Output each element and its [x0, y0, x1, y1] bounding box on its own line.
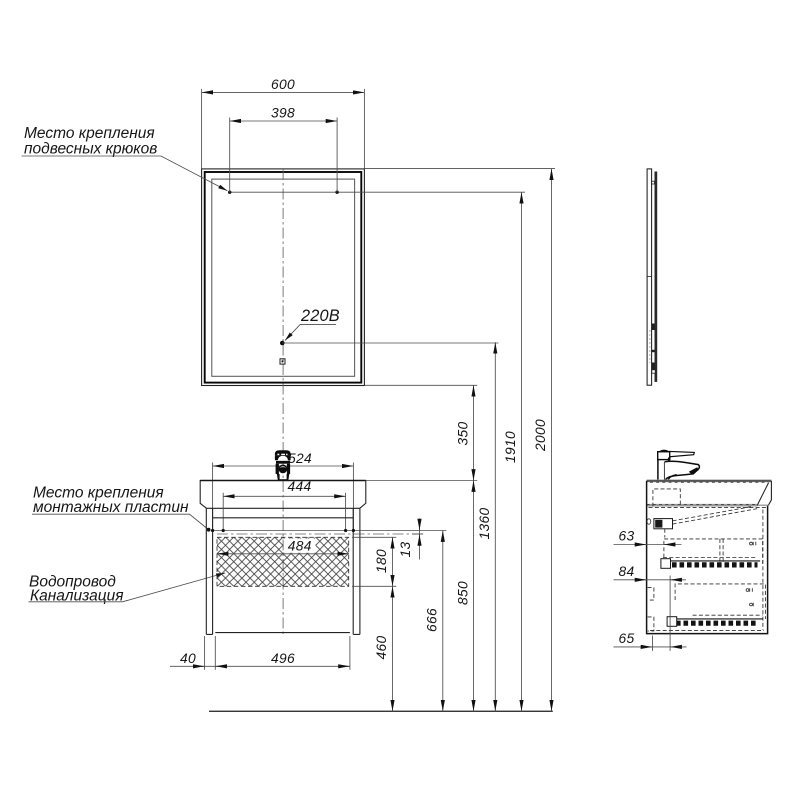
svg-text:398: 398 [271, 106, 295, 121]
svg-text:13: 13 [398, 541, 413, 557]
svg-text:666: 666 [425, 608, 440, 632]
svg-text:350: 350 [455, 421, 470, 445]
svg-text:63: 63 [618, 529, 634, 544]
svg-text:1910: 1910 [503, 431, 518, 463]
svg-text:460: 460 [374, 635, 389, 659]
svg-text:496: 496 [271, 651, 295, 666]
svg-text:84: 84 [618, 564, 634, 579]
svg-text:600: 600 [271, 77, 295, 92]
svg-text:40: 40 [180, 651, 196, 666]
svg-text:65: 65 [618, 631, 634, 646]
svg-text:850: 850 [455, 581, 470, 605]
svg-text:220В: 220В [300, 307, 340, 325]
svg-text:1360: 1360 [477, 507, 492, 539]
svg-text:2000: 2000 [533, 419, 548, 452]
svg-text:подвесных крюков: подвесных крюков [24, 141, 157, 158]
svg-text:180: 180 [374, 549, 389, 573]
svg-text:524: 524 [288, 451, 312, 466]
svg-text:монтажных пластин: монтажных пластин [33, 499, 189, 516]
svg-text:444: 444 [287, 479, 311, 494]
svg-text:484: 484 [288, 539, 312, 554]
